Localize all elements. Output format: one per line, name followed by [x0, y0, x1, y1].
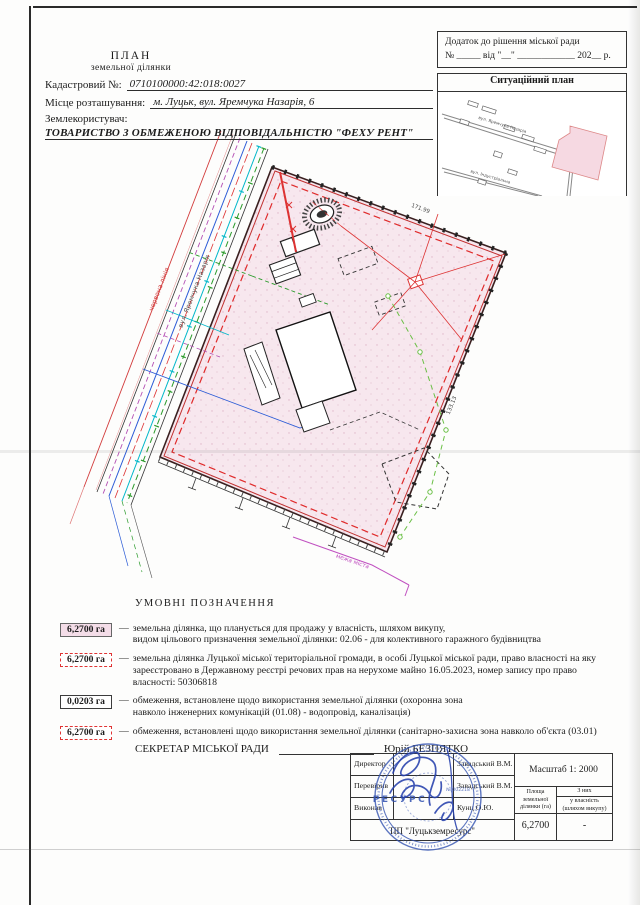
scan-border-left: [29, 6, 31, 905]
legend-swatch-plot: 6,2700 га: [60, 623, 112, 637]
situational-plan-title: Ситуаційний план: [438, 74, 626, 92]
map-scale: Масштаб 1: 2000: [515, 754, 612, 787]
fold-crease: [0, 450, 640, 453]
fold-crease-bottom: [0, 849, 640, 850]
landuser-label: Землекористувач:: [45, 113, 433, 125]
table-row: Перевірив Завадський В.М.: [351, 776, 514, 798]
company-name: ПП "Луцькземресурс": [351, 820, 514, 840]
area-column-header: Площа земельної ділянки (га): [515, 787, 557, 813]
signature-cell: [394, 776, 454, 797]
secretary-label: СЕКРЕТАР МІСЬКОЇ РАДИ: [135, 743, 269, 755]
buyout-column-header: З них у власність (шляхом викупу): [557, 787, 612, 813]
scanned-land-plan-page: вул. Яремчука Назарія червона лінія межа…: [0, 0, 640, 905]
table-row: Виконав Кунц О.Ю.: [351, 798, 514, 820]
name-director: Завадський В.М.: [454, 754, 514, 775]
legend: УМОВНІ ПОЗНАЧЕННЯ 6,2700 га — земельна д…: [60, 598, 626, 740]
legend-item-text: обмеження, встановлені щодо використання…: [133, 726, 626, 738]
table-row: Директор Завадський В.М.: [351, 754, 514, 776]
legend-item-text: власності: 50306818: [133, 677, 626, 689]
of-them-label: З них: [557, 787, 612, 797]
location-value: м. Луцьк, вул. Яремчука Назарія, 6: [150, 96, 433, 109]
legend-swatch-restriction: 0,0203 га: [60, 695, 112, 709]
edge-length-top: 171.99: [410, 203, 431, 215]
legend-dash: —: [117, 653, 133, 665]
signature-cell: [394, 754, 454, 775]
annex-line2: № _____ від "__" ____________ 202__ р.: [445, 49, 619, 63]
legend-dash: —: [117, 623, 133, 635]
legend-item: 6,2700 га — земельна ділянка Луцької міс…: [60, 653, 626, 688]
location-label: Місце розташування:: [45, 97, 150, 109]
buyout-hdr-line: у власність: [557, 798, 612, 806]
legend-title: УМОВНІ ПОЗНАЧЕННЯ: [135, 598, 626, 611]
area-hdr-line: Площа: [515, 789, 556, 797]
name-checked: Завадський В.М.: [454, 776, 514, 797]
legend-item: 0,0203 га — обмеження, встановлене щодо …: [60, 695, 626, 719]
annex-box: Додаток до рішення міської ради № _____ …: [437, 31, 627, 68]
cadastral-label: Кадастровий №:: [45, 79, 127, 91]
area-value: 6,2700: [515, 814, 557, 840]
role-checked: Перевірив: [351, 776, 394, 797]
legend-dash: —: [117, 695, 133, 707]
legend-swatch-territory: 6,2700 га: [60, 653, 112, 667]
landuser-value: ТОВАРИСТВО З ОБМЕЖЕНОЮ ВІДПОВІДАЛЬНІСТЮ …: [45, 127, 433, 140]
cadastral-value: 0710100000:42:018:0027: [127, 78, 433, 91]
legend-item-text: навколо інженерних комунікацій (01.08) -…: [133, 707, 626, 719]
legend-item-text: земельна ділянка Луцької міської територ…: [133, 653, 626, 665]
legend-item: 6,2700 га — земельна ділянка, що плануєт…: [60, 623, 626, 647]
legend-swatch-sanitary: 6,2700 га: [60, 726, 112, 740]
role-director: Директор: [351, 754, 394, 775]
red-line-label: червона лінія: [147, 266, 171, 312]
street-name-label: вул. Яремчука Назарія: [177, 254, 212, 329]
legend-item-text: зареєстровано в Державному реєстрі речов…: [133, 665, 626, 677]
legend-item-text: видом цільового призначення земельної ді…: [133, 634, 626, 646]
document-header: ПЛАН земельної ділянки Кадастровий №: 07…: [45, 50, 433, 140]
name-executed: Кунц О.Ю.: [454, 798, 514, 819]
doc-subtitle: земельної ділянки: [45, 63, 217, 73]
legend-item: 6,2700 га — обмеження, встановлені щодо …: [60, 726, 626, 740]
signature-cell: [394, 798, 454, 819]
annex-line1: Додаток до рішення міської ради: [445, 35, 619, 49]
buyout-value: -: [557, 814, 612, 840]
legend-item-text: земельна ділянка, що планується для прод…: [133, 623, 626, 635]
situational-plan-box: Ситуаційний план: [437, 73, 627, 196]
role-executed: Виконав: [351, 798, 394, 819]
area-hdr-line: ділянки (га): [515, 804, 556, 812]
legend-dash: —: [117, 726, 133, 738]
legend-item-text: обмеження, встановлене щодо використання…: [133, 695, 626, 707]
buyout-hdr-line: (шляхом викупу): [557, 806, 612, 814]
approval-table: Директор Завадський В.М. Перевірив Завад…: [350, 753, 613, 841]
situational-plan-map: вул. Яремчука Назарія вул. Індустріальна: [438, 92, 626, 196]
doc-title: ПЛАН: [45, 50, 217, 62]
scan-border-top: [33, 6, 637, 8]
